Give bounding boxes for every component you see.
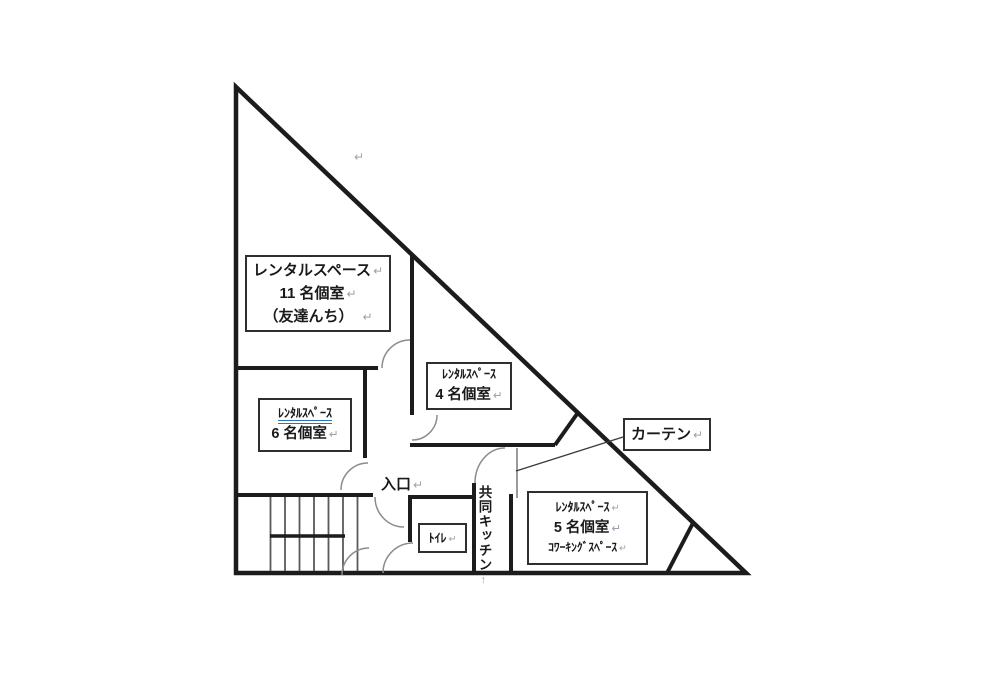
toilet-label: ﾄｲﾚ↵ bbox=[428, 529, 456, 548]
room11-nickname: （友達んち）↵ bbox=[263, 305, 372, 328]
room-label-rental-6: ﾚﾝﾀﾙｽﾍﾟｰｽ 6 名個室↵ bbox=[258, 398, 352, 452]
room5-capacity-text: 5 名個室 bbox=[554, 520, 610, 536]
entrance-label: 入口↵ bbox=[381, 473, 423, 494]
room5-name-text: ﾚﾝﾀﾙｽﾍﾟｰｽ bbox=[555, 500, 609, 514]
stray-return-mark: ↵ bbox=[354, 150, 364, 164]
shared-kitchen-label-text: 共同キッチン bbox=[477, 485, 492, 572]
room5-name: ﾚﾝﾀﾙｽﾍﾟｰｽ↵ bbox=[555, 498, 619, 517]
return-mark: ↵ bbox=[329, 428, 339, 441]
shared-kitchen-label: 共同キッチン↑ bbox=[477, 485, 491, 587]
room-label-rental-5-coworking: ﾚﾝﾀﾙｽﾍﾟｰｽ↵ 5 名個室↵ ｺﾜｰｷﾝｸﾞｽﾍﾟｰｽ↵ bbox=[527, 491, 648, 565]
staircase-risers bbox=[271, 497, 358, 571]
room11-name-text: レンタルスペース bbox=[253, 262, 371, 279]
return-mark: ↵ bbox=[493, 389, 503, 402]
toilet-label-box: ﾄｲﾚ↵ bbox=[418, 523, 467, 553]
return-mark: ↵ bbox=[413, 478, 423, 492]
return-mark: ↵ bbox=[346, 287, 356, 301]
room4-name-text: ﾚﾝﾀﾙｽﾍﾟｰｽ bbox=[442, 367, 496, 381]
floor-plan-svg bbox=[0, 0, 1006, 678]
room-label-rental-11: レンタルスペース↵ 11 名個室↵ （友達んち）↵ bbox=[245, 255, 391, 332]
room5-coworking: ｺﾜｰｷﾝｸﾞｽﾍﾟｰｽ↵ bbox=[548, 540, 627, 558]
room6-name: ﾚﾝﾀﾙｽﾍﾟｰｽ bbox=[278, 404, 332, 423]
return-mark: ↵ bbox=[619, 543, 627, 553]
room11-nickname-text: （友達んち） bbox=[263, 308, 353, 325]
room-label-rental-4: ﾚﾝﾀﾙｽﾍﾟｰｽ 4 名個室↵ bbox=[426, 362, 512, 410]
vertical-return-mark: ↑ bbox=[478, 574, 490, 587]
room11-name: レンタルスペース↵ bbox=[253, 259, 383, 282]
room6-capacity-text: 6 名個室 bbox=[271, 426, 327, 442]
entrance-label-text: 入口 bbox=[381, 476, 411, 493]
return-mark: ↵ bbox=[611, 522, 621, 535]
curtain-leader-line bbox=[516, 437, 623, 471]
return-mark: ↵ bbox=[362, 310, 372, 324]
return-mark: ↵ bbox=[448, 534, 456, 545]
room5-coworking-text: ｺﾜｰｷﾝｸﾞｽﾍﾟｰｽ bbox=[548, 542, 617, 554]
return-mark: ↵ bbox=[373, 264, 383, 278]
room6-capacity: 6 名個室↵ bbox=[271, 423, 338, 445]
room4-capacity-text: 4 名個室 bbox=[435, 387, 491, 403]
room5-capacity: 5 名個室↵ bbox=[554, 517, 621, 539]
room11-capacity: 11 名個室↵ bbox=[279, 282, 356, 305]
room11-capacity-text: 11 名個室 bbox=[279, 285, 344, 302]
room4-capacity: 4 名個室↵ bbox=[435, 384, 502, 406]
toilet-label-text: ﾄｲﾚ bbox=[428, 531, 446, 545]
room6-name-text: ﾚﾝﾀﾙｽﾍﾟｰｽ bbox=[278, 406, 332, 424]
return-mark: ↵ bbox=[611, 503, 619, 514]
curtain-callout-box: カーテン↵ bbox=[623, 418, 711, 451]
return-mark: ↵ bbox=[693, 428, 703, 442]
curtain-label-text: カーテン bbox=[631, 426, 691, 443]
curtain-label: カーテン↵ bbox=[631, 423, 703, 446]
floor-plan-canvas: レンタルスペース↵ 11 名個室↵ （友達んち）↵ ﾚﾝﾀﾙｽﾍﾟｰｽ 6 名個… bbox=[0, 0, 1006, 678]
room4-name: ﾚﾝﾀﾙｽﾍﾟｰｽ bbox=[442, 365, 496, 384]
